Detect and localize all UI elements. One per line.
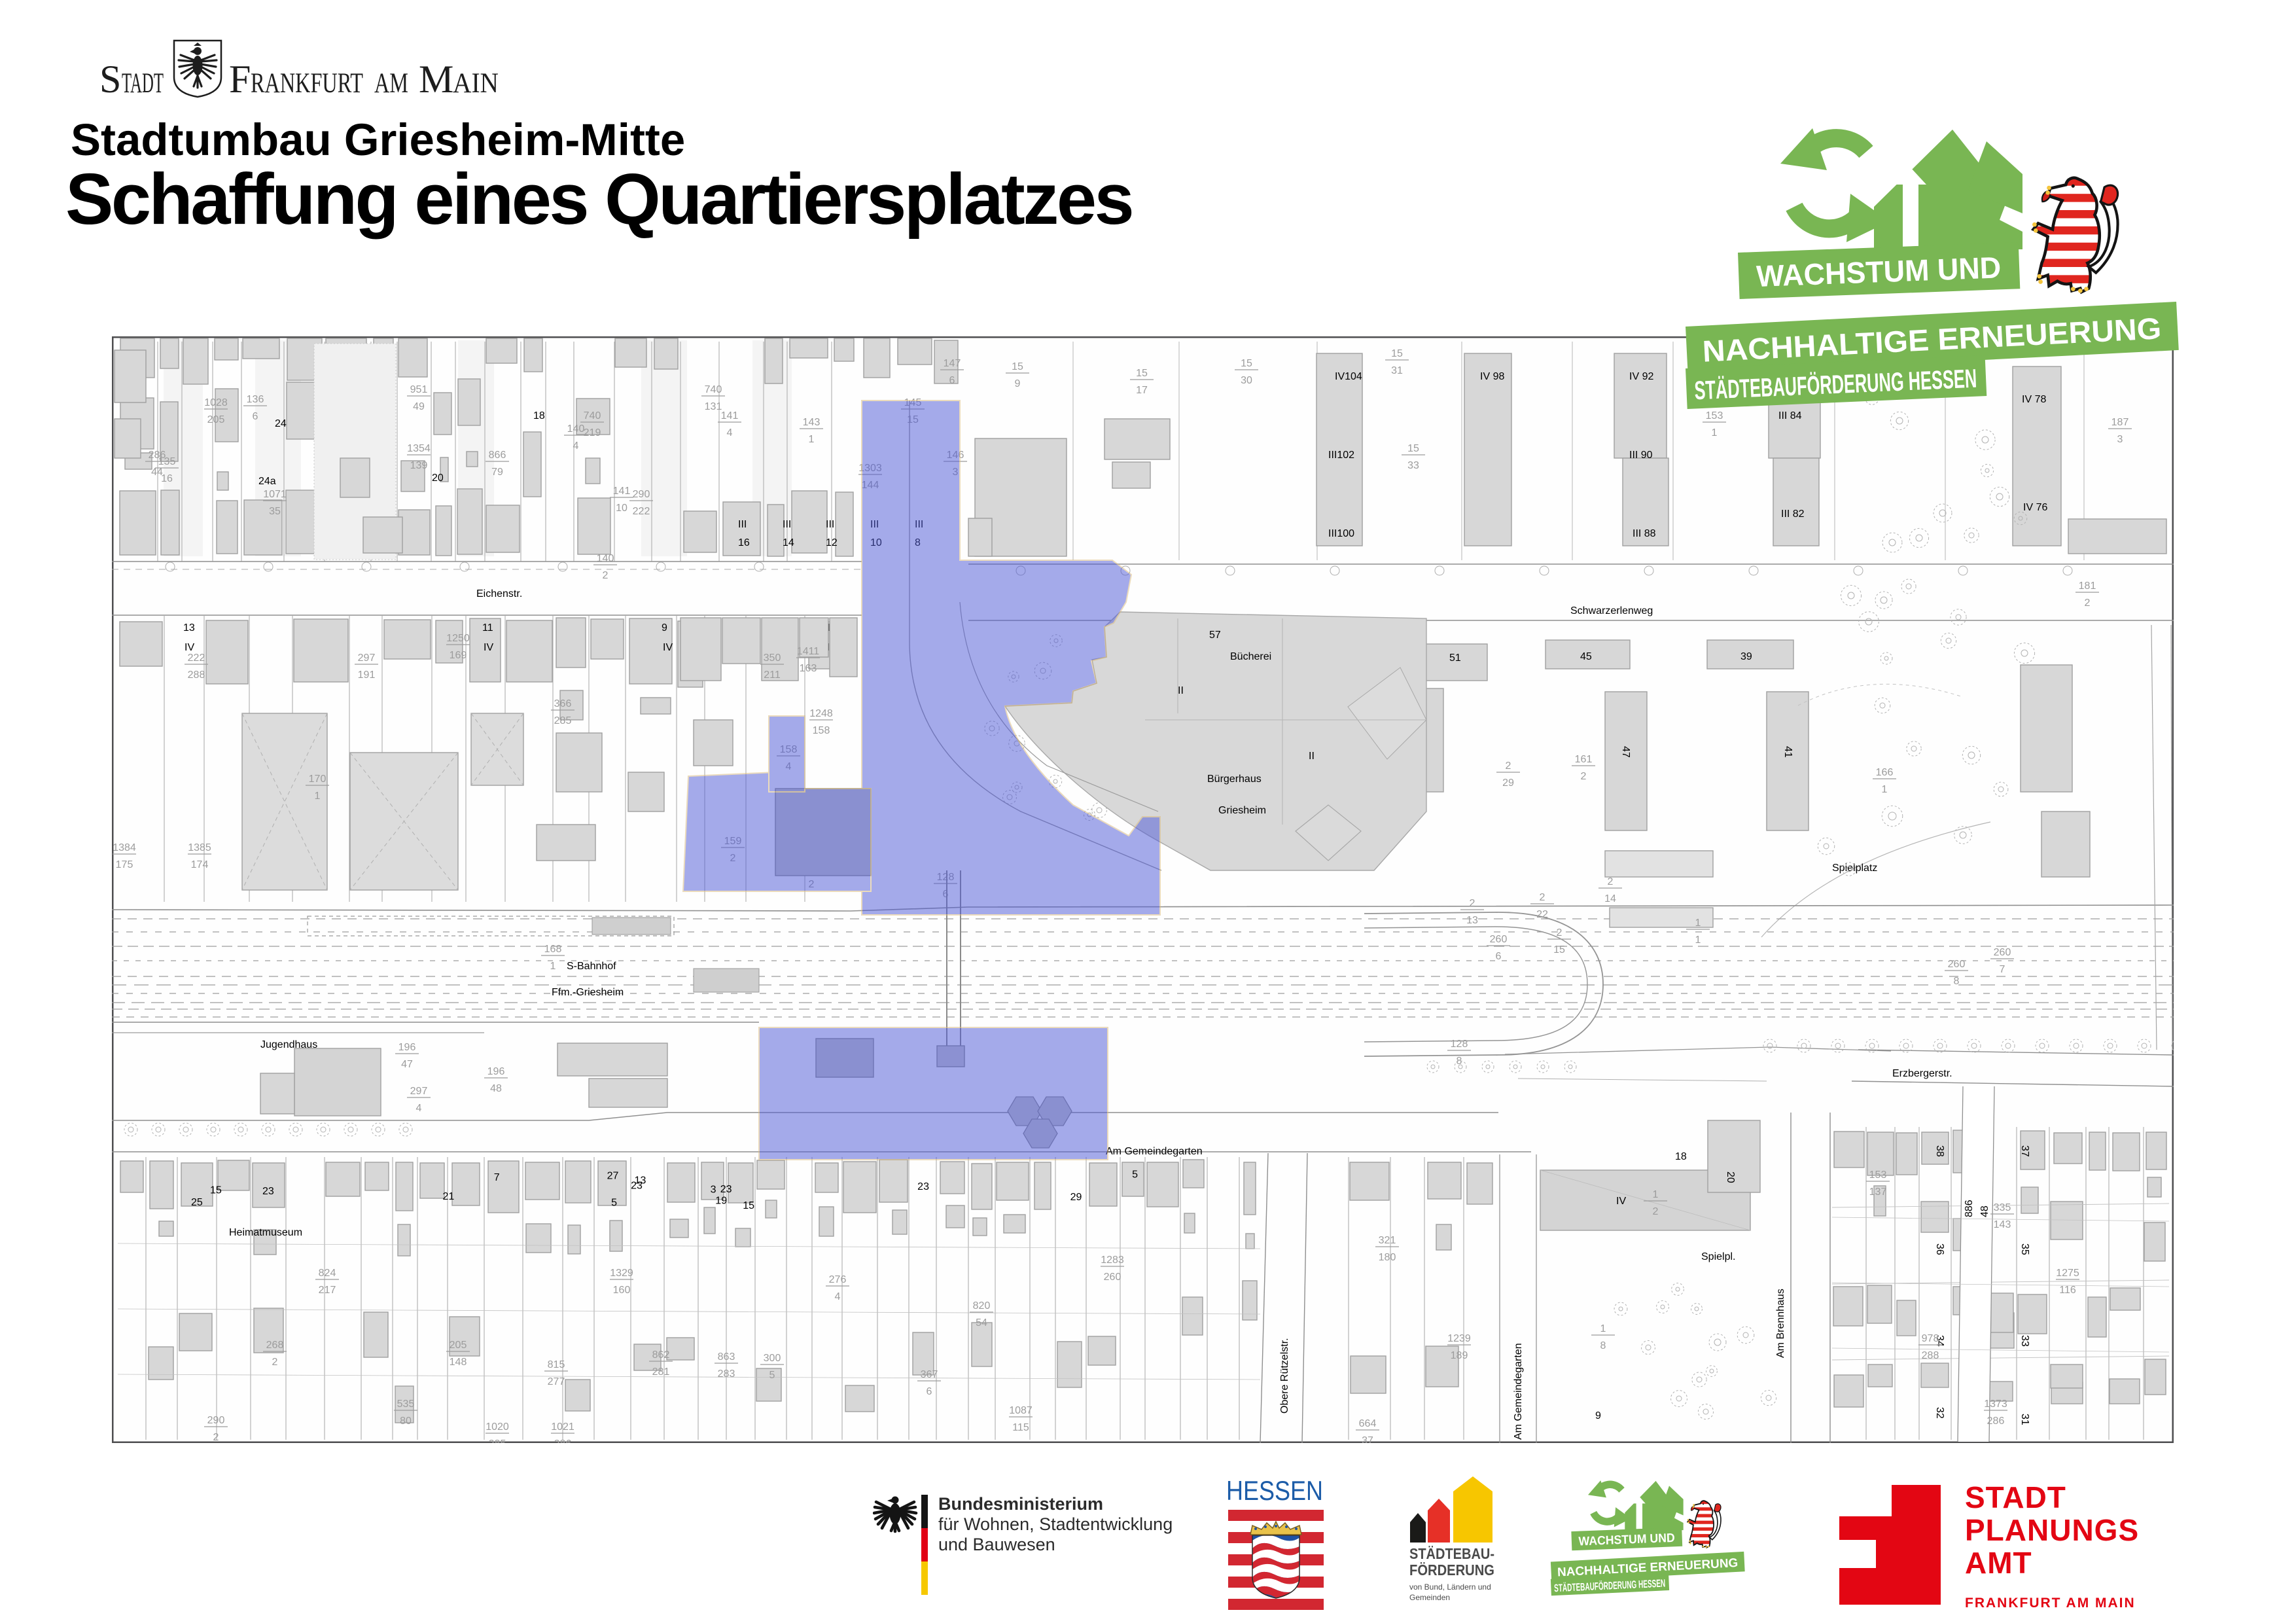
svg-text:128: 128 — [1451, 1039, 1468, 1050]
svg-text:288: 288 — [1922, 1350, 1939, 1361]
svg-text:2: 2 — [1557, 927, 1563, 938]
svg-text:1: 1 — [1695, 935, 1701, 946]
svg-text:886: 886 — [1964, 1200, 1975, 1217]
svg-text:37: 37 — [2019, 1145, 2030, 1157]
svg-text:32: 32 — [1934, 1407, 1945, 1419]
svg-text:20: 20 — [1725, 1171, 1736, 1183]
svg-text:160: 160 — [613, 1285, 631, 1296]
svg-text:285: 285 — [489, 1438, 506, 1443]
svg-text:IV: IV — [484, 642, 493, 653]
svg-text:F: F — [229, 58, 251, 101]
svg-text:41: 41 — [1782, 746, 1793, 758]
svg-text:27: 27 — [607, 1170, 619, 1181]
svg-text:217: 217 — [319, 1285, 336, 1296]
svg-text:III100: III100 — [1328, 528, 1354, 539]
svg-text:4: 4 — [727, 427, 733, 438]
svg-text:44: 44 — [151, 467, 163, 478]
svg-text:III102: III102 — [1328, 450, 1354, 461]
svg-text:1384: 1384 — [113, 842, 136, 853]
svg-text:24: 24 — [275, 418, 287, 429]
svg-text:AMT: AMT — [1965, 1546, 2032, 1580]
svg-text:2: 2 — [603, 570, 609, 581]
svg-text:2: 2 — [1506, 760, 1511, 772]
svg-text:1: 1 — [1695, 918, 1701, 929]
svg-text:29: 29 — [1502, 777, 1514, 789]
svg-text:15: 15 — [1407, 443, 1419, 454]
svg-text:288: 288 — [188, 669, 205, 681]
svg-text:III 90: III 90 — [1629, 450, 1653, 461]
svg-text:IV104: IV104 — [1335, 371, 1362, 382]
svg-text:1071: 1071 — [263, 489, 287, 500]
svg-text:S: S — [99, 58, 121, 101]
svg-text:181: 181 — [2079, 580, 2096, 592]
svg-text:1020: 1020 — [486, 1421, 509, 1433]
svg-text:205: 205 — [207, 414, 225, 425]
svg-text:260: 260 — [1104, 1272, 1122, 1283]
svg-text:2: 2 — [1540, 892, 1545, 903]
svg-text:38: 38 — [1934, 1145, 1945, 1157]
svg-text:140: 140 — [597, 553, 614, 564]
svg-text:24a: 24a — [258, 476, 276, 487]
svg-text:260: 260 — [1948, 959, 1966, 970]
svg-text:5: 5 — [1132, 1169, 1138, 1180]
svg-text:1411: 1411 — [797, 646, 820, 657]
svg-text:Bundesministerium: Bundesministerium — [938, 1494, 1103, 1514]
svg-text:II: II — [1178, 685, 1184, 696]
svg-text:2: 2 — [1581, 771, 1587, 782]
svg-text:174: 174 — [191, 859, 209, 870]
svg-text:153: 153 — [1869, 1169, 1887, 1181]
svg-text:205: 205 — [450, 1340, 467, 1351]
svg-text:978: 978 — [1922, 1333, 1939, 1344]
svg-text:Bücherei: Bücherei — [1230, 651, 1271, 662]
svg-text:14: 14 — [783, 537, 794, 548]
svg-text:III: III — [826, 519, 834, 530]
svg-text:29: 29 — [1070, 1192, 1082, 1203]
svg-text:2: 2 — [213, 1432, 219, 1443]
svg-text:23: 23 — [917, 1181, 929, 1192]
svg-text:1385: 1385 — [188, 842, 211, 853]
svg-text:1329: 1329 — [610, 1268, 633, 1279]
svg-text:IV 92: IV 92 — [1629, 371, 1653, 382]
svg-text:30: 30 — [1241, 375, 1252, 386]
svg-text:54: 54 — [976, 1317, 987, 1329]
svg-text:290: 290 — [633, 489, 650, 500]
svg-text:47: 47 — [1620, 746, 1631, 758]
svg-text:3: 3 — [2117, 434, 2123, 445]
svg-text:367: 367 — [921, 1369, 938, 1380]
svg-text:1021: 1021 — [551, 1421, 574, 1433]
svg-text:Heimatmuseum: Heimatmuseum — [229, 1227, 302, 1238]
svg-text:III: III — [738, 519, 747, 530]
svg-text:45: 45 — [1580, 651, 1592, 662]
svg-text:20: 20 — [432, 473, 444, 484]
svg-text:4: 4 — [573, 440, 579, 452]
svg-text:143: 143 — [1994, 1219, 2011, 1230]
svg-text:STADT: STADT — [1965, 1480, 2066, 1514]
svg-text:268: 268 — [266, 1340, 284, 1351]
svg-text:1: 1 — [550, 961, 556, 972]
svg-text:1373: 1373 — [1984, 1399, 2007, 1410]
svg-text:22: 22 — [1536, 909, 1548, 920]
svg-text:Gemeinden: Gemeinden — [1409, 1593, 1450, 1602]
svg-text:9: 9 — [1015, 378, 1021, 389]
svg-text:IV 98: IV 98 — [1480, 371, 1504, 382]
svg-text:740: 740 — [705, 384, 722, 395]
svg-text:36: 36 — [1934, 1243, 1945, 1255]
svg-text:9: 9 — [662, 622, 667, 633]
svg-text:Ffm.-Griesheim: Ffm.-Griesheim — [552, 987, 624, 998]
svg-text:III: III — [783, 519, 791, 530]
svg-text:2: 2 — [1470, 898, 1475, 909]
svg-text:196: 196 — [398, 1042, 416, 1053]
svg-text:290: 290 — [207, 1415, 225, 1426]
svg-text:1239: 1239 — [1447, 1333, 1471, 1344]
svg-text:19: 19 — [715, 1196, 727, 1207]
svg-text:276: 276 — [829, 1274, 847, 1285]
svg-text:219: 219 — [584, 427, 601, 438]
svg-text:1028: 1028 — [204, 397, 228, 408]
svg-text:48: 48 — [1979, 1205, 1990, 1217]
svg-text:115: 115 — [1012, 1422, 1029, 1433]
svg-text:300: 300 — [764, 1353, 781, 1364]
svg-text:196: 196 — [487, 1066, 505, 1077]
svg-text:Spielplatz: Spielplatz — [1832, 863, 1877, 874]
svg-text:TADT: TADT — [122, 68, 164, 99]
svg-text:17: 17 — [1136, 385, 1148, 396]
svg-text:13: 13 — [183, 622, 195, 633]
svg-text:1248: 1248 — [809, 708, 833, 719]
svg-text:222: 222 — [633, 506, 650, 517]
svg-text:535: 535 — [397, 1399, 415, 1410]
svg-text:51: 51 — [1449, 652, 1461, 664]
svg-text:1: 1 — [1653, 1189, 1659, 1200]
svg-text:1: 1 — [1600, 1323, 1606, 1334]
svg-text:15: 15 — [1241, 358, 1252, 369]
svg-text:1283: 1283 — [1101, 1255, 1124, 1266]
svg-text:7: 7 — [494, 1172, 500, 1183]
svg-text:139: 139 — [410, 460, 428, 471]
svg-text:166: 166 — [1876, 767, 1894, 778]
svg-text:Eichenstr.: Eichenstr. — [476, 588, 522, 599]
svg-text:FÖRDERUNG: FÖRDERUNG — [1409, 1561, 1494, 1578]
svg-text:23: 23 — [720, 1184, 732, 1195]
svg-text:260: 260 — [1994, 947, 2011, 958]
svg-text:297: 297 — [358, 652, 376, 664]
svg-text:951: 951 — [410, 384, 428, 395]
svg-text:15: 15 — [1136, 368, 1148, 379]
svg-text:Spielpl.: Spielpl. — [1701, 1251, 1735, 1262]
svg-text:2: 2 — [272, 1357, 278, 1368]
svg-text:8: 8 — [1600, 1340, 1606, 1351]
svg-text:IV: IV — [1616, 1196, 1626, 1207]
svg-text:141: 141 — [721, 410, 739, 421]
svg-text:PLANUNGS: PLANUNGS — [1965, 1513, 2139, 1547]
svg-text:116: 116 — [2059, 1285, 2076, 1296]
svg-text:286: 286 — [554, 1438, 572, 1443]
svg-text:740: 740 — [584, 410, 601, 421]
svg-text:Schwarzerlenweg: Schwarzerlenweg — [1570, 605, 1653, 616]
svg-text:168: 168 — [544, 944, 562, 955]
svg-text:Am Brennhaus: Am Brennhaus — [1775, 1289, 1786, 1358]
svg-text:866: 866 — [489, 450, 506, 461]
svg-text:4: 4 — [835, 1291, 841, 1302]
svg-text:21: 21 — [443, 1191, 455, 1202]
svg-text:13: 13 — [635, 1175, 646, 1186]
svg-text:281: 281 — [652, 1366, 670, 1378]
svg-text:131: 131 — [705, 401, 722, 412]
svg-text:7: 7 — [2000, 964, 2005, 975]
svg-text:170: 170 — [309, 774, 327, 785]
svg-text:137: 137 — [1869, 1186, 1887, 1198]
svg-text:16: 16 — [738, 537, 750, 548]
svg-text:RANKFURT: RANKFURT — [251, 68, 363, 99]
svg-text:HESSEN: HESSEN — [1226, 1475, 1323, 1506]
svg-text:35: 35 — [2019, 1243, 2030, 1255]
svg-text:147: 147 — [944, 358, 961, 369]
svg-text:FRANKFURT AM MAIN: FRANKFURT AM MAIN — [1965, 1596, 2136, 1611]
svg-text:15: 15 — [1012, 361, 1023, 372]
svg-text:31: 31 — [1391, 365, 1403, 376]
svg-text:14: 14 — [1604, 893, 1616, 904]
svg-text:III 88: III 88 — [1633, 528, 1656, 539]
svg-text:141: 141 — [613, 486, 631, 497]
svg-text:222: 222 — [188, 652, 205, 664]
svg-text:33: 33 — [1407, 460, 1419, 471]
svg-text:5: 5 — [769, 1370, 775, 1381]
svg-text:824: 824 — [319, 1268, 336, 1279]
svg-text:M: M — [419, 58, 453, 101]
svg-text:4: 4 — [416, 1103, 422, 1114]
svg-text:15: 15 — [743, 1200, 754, 1211]
svg-text:5: 5 — [611, 1198, 617, 1209]
svg-text:6: 6 — [253, 411, 258, 422]
svg-text:2: 2 — [1653, 1206, 1659, 1217]
svg-text:48: 48 — [490, 1083, 502, 1094]
svg-text:Jugendhaus: Jugendhaus — [260, 1039, 317, 1050]
svg-text:6: 6 — [1496, 951, 1502, 962]
svg-text:191: 191 — [358, 669, 376, 681]
svg-text:47: 47 — [401, 1059, 413, 1070]
svg-text:283: 283 — [718, 1368, 735, 1380]
svg-text:1354: 1354 — [407, 443, 431, 454]
svg-text:140: 140 — [567, 423, 585, 435]
svg-text:23: 23 — [262, 1186, 274, 1197]
svg-text:175: 175 — [116, 859, 133, 870]
svg-text:IV: IV — [663, 642, 673, 653]
svg-text:33: 33 — [2019, 1335, 2030, 1347]
svg-text:158: 158 — [813, 725, 830, 736]
svg-text:Griesheim: Griesheim — [1218, 805, 1266, 816]
svg-text:2: 2 — [2085, 597, 2091, 609]
svg-text:863: 863 — [718, 1351, 735, 1363]
svg-text:IV 76: IV 76 — [2023, 502, 2047, 513]
svg-text:10: 10 — [616, 503, 627, 514]
svg-text:286: 286 — [149, 450, 166, 461]
svg-text:39: 39 — [1740, 651, 1752, 662]
svg-text:15: 15 — [1553, 944, 1565, 955]
svg-text:1250: 1250 — [446, 633, 470, 644]
svg-text:18: 18 — [533, 410, 545, 421]
svg-text:15: 15 — [1391, 348, 1403, 359]
svg-text:11: 11 — [482, 622, 493, 633]
svg-text:189: 189 — [1451, 1350, 1468, 1361]
svg-text:15: 15 — [210, 1185, 222, 1196]
svg-text:6: 6 — [927, 1386, 932, 1397]
svg-text:18: 18 — [1675, 1151, 1687, 1162]
svg-text:297: 297 — [410, 1086, 428, 1097]
svg-text:136: 136 — [247, 394, 264, 405]
svg-text:35: 35 — [269, 506, 281, 517]
svg-text:285: 285 — [554, 715, 572, 726]
svg-text:III 82: III 82 — [1781, 508, 1805, 520]
svg-text:148: 148 — [450, 1357, 467, 1368]
svg-text:1: 1 — [1882, 784, 1888, 795]
svg-text:260: 260 — [1490, 934, 1508, 945]
svg-text:143: 143 — [803, 417, 821, 428]
svg-text:3: 3 — [711, 1184, 716, 1195]
svg-text:AIN: AIN — [453, 68, 499, 99]
svg-text:Bürgerhaus: Bürgerhaus — [1207, 774, 1262, 785]
svg-text:286: 286 — [1987, 1416, 2005, 1427]
svg-text:277: 277 — [548, 1376, 565, 1387]
svg-text:S-Bahnhof: S-Bahnhof — [567, 961, 616, 972]
svg-text:57: 57 — [1209, 630, 1221, 641]
svg-text:AM: AM — [374, 68, 408, 99]
svg-text:163: 163 — [800, 663, 817, 674]
svg-text:9: 9 — [1595, 1410, 1601, 1421]
svg-text:169: 169 — [450, 650, 467, 661]
svg-text:49: 49 — [413, 401, 425, 412]
svg-text:2: 2 — [1608, 876, 1614, 887]
svg-text:350: 350 — [764, 652, 781, 664]
svg-text:80: 80 — [400, 1416, 412, 1427]
svg-text:STÄDTEBAU-: STÄDTEBAU- — [1409, 1545, 1494, 1562]
svg-text:II: II — [1309, 751, 1315, 762]
svg-text:211: 211 — [764, 669, 781, 681]
svg-text:180: 180 — [1379, 1252, 1396, 1263]
svg-text:820: 820 — [973, 1300, 991, 1311]
svg-text:25: 25 — [191, 1197, 203, 1208]
svg-text:IV: IV — [185, 642, 194, 653]
svg-text:321: 321 — [1379, 1235, 1396, 1246]
svg-text:Am Gemeindegarten: Am Gemeindegarten — [1106, 1146, 1203, 1157]
svg-text:664: 664 — [1359, 1418, 1377, 1429]
svg-text:und Bauwesen: und Bauwesen — [938, 1535, 1055, 1554]
svg-text:366: 366 — [554, 698, 572, 709]
svg-text:31: 31 — [2019, 1414, 2030, 1425]
svg-text:Am Gemeindegarten: Am Gemeindegarten — [1513, 1343, 1524, 1440]
svg-text:862: 862 — [652, 1349, 670, 1361]
svg-text:12: 12 — [826, 537, 838, 548]
svg-text:335: 335 — [1994, 1202, 2011, 1213]
svg-text:1087: 1087 — [1009, 1405, 1033, 1416]
svg-text:für Wohnen, Stadtentwicklung: für Wohnen, Stadtentwicklung — [938, 1514, 1173, 1534]
svg-text:37: 37 — [1362, 1435, 1373, 1443]
svg-text:von Bund, Ländern und: von Bund, Ländern und — [1409, 1582, 1491, 1592]
svg-text:79: 79 — [491, 467, 503, 478]
svg-text:Erzbergerstr.: Erzbergerstr. — [1892, 1068, 1952, 1079]
svg-text:8: 8 — [1954, 976, 1960, 987]
svg-text:13: 13 — [1466, 915, 1478, 926]
svg-text:Obere Rützelstr.: Obere Rützelstr. — [1279, 1338, 1290, 1414]
svg-text:815: 815 — [548, 1359, 565, 1370]
svg-text:1275: 1275 — [2056, 1268, 2079, 1279]
svg-text:161: 161 — [1575, 754, 1593, 765]
svg-text:1: 1 — [809, 434, 815, 445]
svg-text:6: 6 — [949, 375, 955, 386]
svg-text:1: 1 — [315, 791, 321, 802]
